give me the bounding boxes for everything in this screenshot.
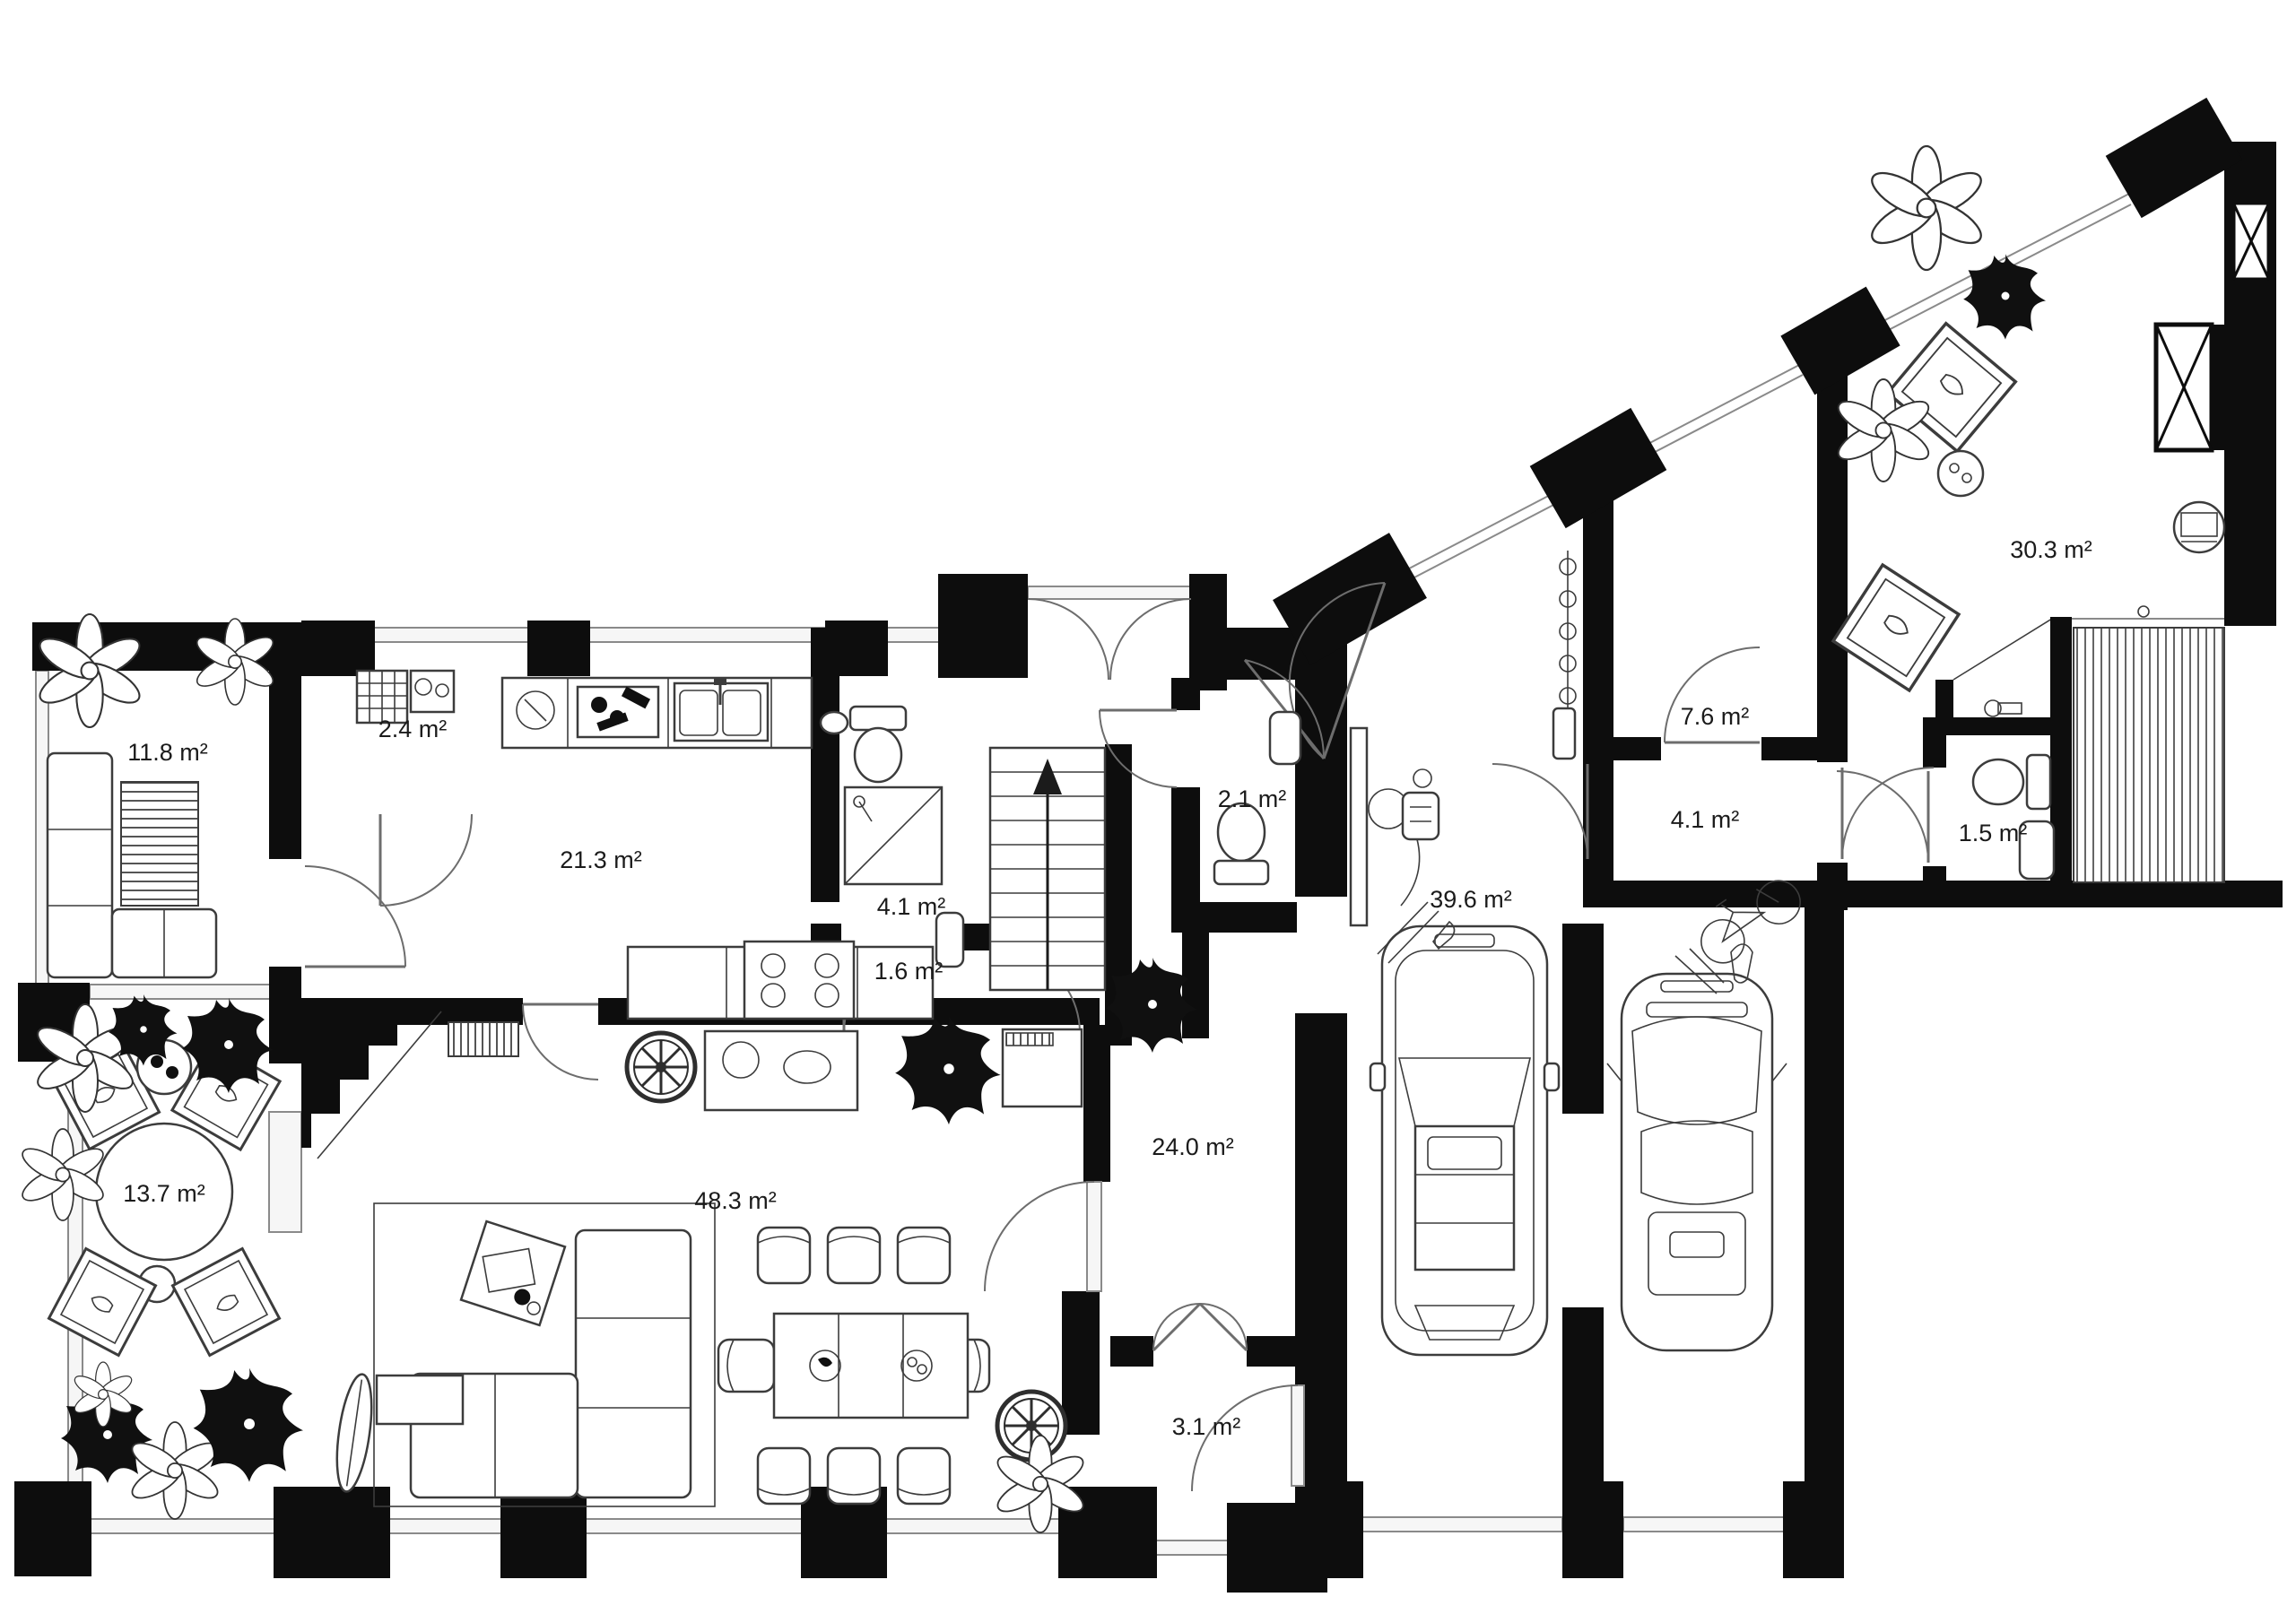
door-kitchen-living — [523, 1004, 598, 1080]
door-corridor-vestibule — [1153, 1304, 1247, 1350]
label-vestibule: 3.1 m² — [1172, 1413, 1241, 1440]
door-main-north — [1028, 599, 1191, 680]
side-table-round — [1938, 451, 1983, 496]
entry-door-lintel — [1028, 586, 1191, 599]
bicycle-icon — [1687, 864, 1809, 971]
outdoor-tap-icon — [1985, 700, 2022, 716]
label-studio: 30.3 m² — [2010, 536, 2092, 563]
plant-icon — [895, 1015, 1000, 1124]
radiator-icon — [448, 1022, 518, 1056]
walls — [14, 98, 2283, 1593]
leaning-board — [1351, 728, 1367, 925]
label-terrace: 13.7 m² — [123, 1180, 205, 1207]
wagon-wheel-icon — [627, 1033, 695, 1101]
washbasin-icon — [1270, 712, 1300, 764]
cooktop-icon — [744, 942, 854, 1019]
door-loggia-kitchen — [305, 866, 405, 967]
shower-icon — [845, 787, 942, 884]
console-table — [705, 1031, 857, 1110]
chimney-shaft-icon — [2156, 325, 2212, 450]
deck-louvres — [2074, 628, 2224, 882]
low-table — [377, 1376, 463, 1424]
garage-door-right — [1623, 1517, 1785, 1532]
label-garage: 39.6 m² — [1430, 886, 1512, 913]
door-studio — [1842, 768, 1934, 859]
label-wc: 2.1 m² — [1218, 785, 1287, 812]
toilet-icon — [1973, 755, 2050, 809]
console-table — [1003, 1029, 1082, 1107]
terrace-chair — [172, 1248, 279, 1355]
window-terrace-living — [269, 1112, 301, 1232]
garage-door-left — [1360, 1517, 1562, 1532]
door-small-wc — [1837, 771, 1928, 863]
label-entry-hall: 4.1 m² — [1671, 806, 1740, 833]
coat-rack-icon — [1553, 551, 1576, 759]
cutting-board-icon — [578, 687, 658, 737]
striped-rug — [121, 782, 198, 906]
stairs-icon — [990, 748, 1105, 990]
window-loggia-terrace — [90, 985, 271, 999]
label-small-wc: 1.5 m² — [1959, 820, 2028, 846]
door-entryhall-west — [1492, 764, 1587, 859]
label-hallway: 7.6 m² — [1681, 703, 1750, 730]
armchair — [1833, 565, 1959, 690]
suv-car-icon — [1370, 926, 1559, 1355]
sink-icon — [674, 678, 768, 741]
plant-icon — [194, 1368, 303, 1482]
laundry-sink-icon — [411, 671, 454, 712]
surfboard-icon — [331, 1372, 378, 1493]
door-living-corridor — [985, 1182, 1101, 1291]
classic-car-icon — [1607, 974, 1787, 1350]
label-loggia: 11.8 m² — [127, 739, 208, 766]
side-table — [461, 1221, 565, 1325]
floor-plan-page: 11.8 m² 2.4 m² 21.3 m² 4.1 m² 1.6 m² 2.1… — [0, 0, 2296, 1623]
door-pantry — [380, 814, 472, 906]
plant-icon — [1865, 146, 1987, 270]
label-kitchen: 21.3 m² — [560, 846, 642, 873]
corner-shaft-icon — [2233, 203, 2269, 280]
label-pantry: 2.4 m² — [378, 716, 448, 742]
terrace-furniture — [18, 994, 303, 1519]
side-table-round — [2174, 502, 2224, 552]
sight-line — [1953, 619, 2052, 680]
label-living-room: 48.3 m² — [694, 1187, 777, 1214]
basin-icon — [821, 712, 848, 733]
bathroom-fixtures — [821, 707, 963, 967]
plant-icon — [1963, 254, 2046, 339]
dining-table-icon — [718, 1228, 989, 1504]
toilet-icon — [1214, 803, 1268, 884]
deck-latch — [2138, 606, 2149, 617]
label-bathroom: 4.1 m² — [877, 893, 946, 920]
terrace-chair — [48, 1248, 155, 1355]
label-small-hall: 1.6 m² — [874, 958, 944, 985]
lawn-mower-icon — [1369, 769, 1439, 906]
kitchen-counter — [502, 678, 812, 748]
small-wc-fixtures — [1973, 755, 2054, 879]
label-corridor: 24.0 m² — [1152, 1133, 1234, 1160]
toilet-icon — [850, 707, 906, 782]
floor-plan-drawing: 11.8 m² 2.4 m² 21.3 m² 4.1 m² 1.6 m² 2.1… — [0, 0, 2296, 1623]
living-room-furniture — [331, 958, 1197, 1532]
